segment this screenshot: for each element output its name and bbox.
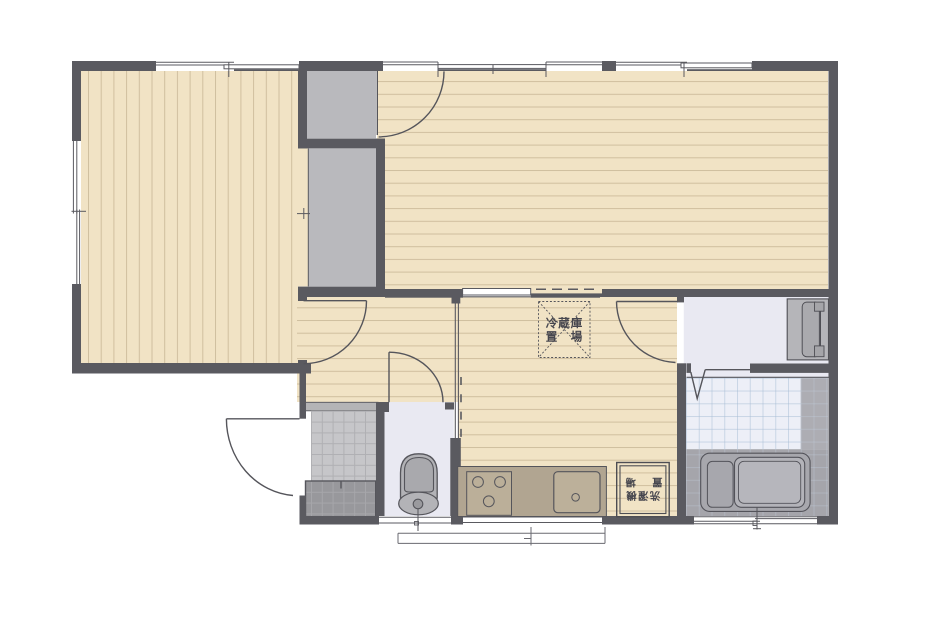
svg-text:洗濯機: 洗濯機 <box>625 489 660 502</box>
svg-text:置 場: 置 場 <box>623 475 663 488</box>
svg-text:置 場: 置 場 <box>546 330 584 344</box>
svg-text:冷蔵庫: 冷蔵庫 <box>546 316 584 330</box>
